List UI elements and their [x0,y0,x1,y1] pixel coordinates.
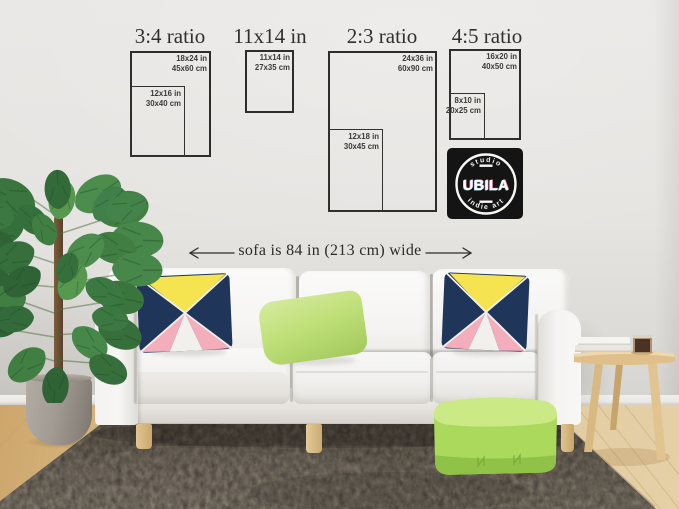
svg-text:UBILA: UBILA [463,178,509,194]
